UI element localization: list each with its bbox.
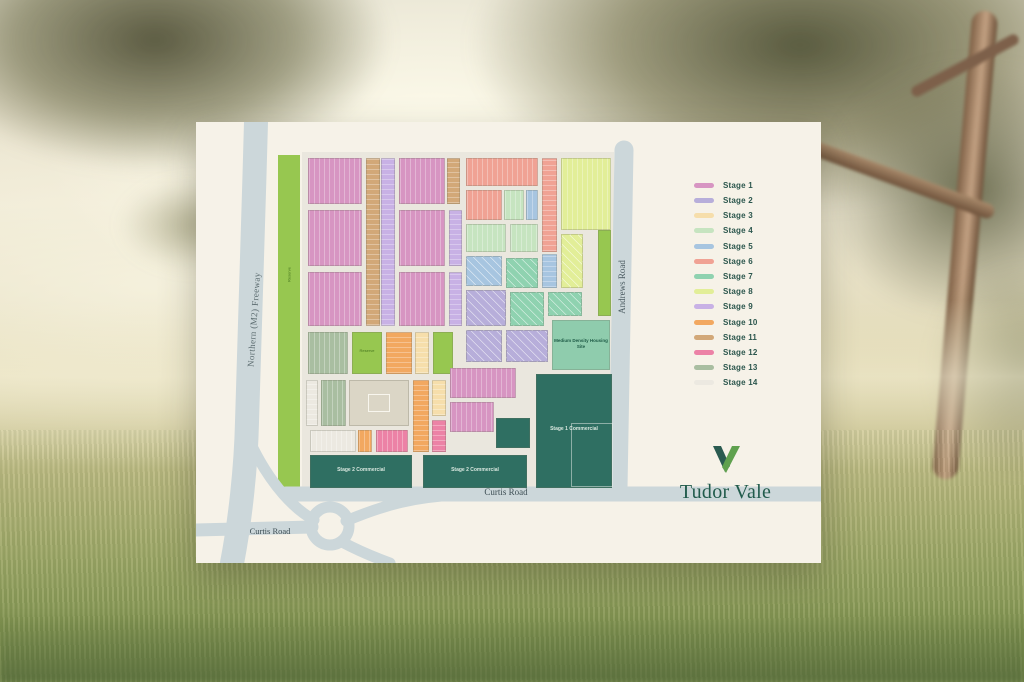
legend-swatch	[694, 335, 714, 340]
lot-block-s8	[561, 158, 611, 230]
lot-block-bldg	[349, 380, 409, 426]
legend-swatch	[694, 380, 714, 385]
legend-item-stage-12: Stage 12	[694, 347, 814, 358]
lot-block-comm: Stage 2 Commercial	[310, 455, 412, 488]
legend-item-stage-13: Stage 13	[694, 362, 814, 373]
stage2-commercial-a-label: Stage 2 Commercial	[311, 467, 411, 473]
lot-block-s1	[308, 158, 362, 204]
curtis-road-west-label: Curtis Road	[226, 526, 314, 536]
legend-item-stage-6: Stage 6	[694, 256, 814, 267]
legend-item-stage-1: Stage 1	[694, 180, 814, 191]
legend-swatch	[694, 244, 714, 249]
reserve-label-2: Reserve	[348, 348, 386, 353]
reserve-label: Reserve	[287, 248, 292, 302]
masterplan-card: Medium Density Housing SiteStage 1 Comme…	[196, 122, 821, 563]
lot-block-s14	[306, 380, 318, 426]
lot-block-s1	[308, 272, 362, 326]
lot-block-s4	[504, 190, 524, 220]
lot-block-s4	[510, 224, 538, 252]
tudor-vale-logo: Tudor Vale	[658, 446, 793, 504]
legend-item-stage-7: Stage 7	[694, 271, 814, 282]
lot-block-s7	[548, 292, 582, 316]
lot-block-s1	[308, 210, 362, 266]
lot-block-comm: Stage 2 Commercial	[423, 455, 527, 488]
lot-block-s6	[466, 158, 538, 186]
legend-swatch	[694, 198, 714, 203]
lot-block-s5	[526, 190, 538, 220]
scene: Medium Density Housing SiteStage 1 Comme…	[0, 0, 1024, 682]
legend-swatch	[694, 183, 714, 188]
lot-block-s4	[466, 224, 506, 252]
legend-label: Stage 7	[723, 272, 753, 281]
legend-label: Stage 11	[723, 333, 757, 342]
legend-label: Stage 8	[723, 287, 753, 296]
lot-block-s12	[376, 430, 408, 452]
legend-swatch	[694, 289, 714, 294]
lot-block-s9	[449, 210, 462, 266]
lot-block-comm	[496, 418, 530, 448]
lot-block-s5	[542, 254, 557, 288]
lot-block-s1	[399, 272, 445, 326]
legend-swatch	[694, 259, 714, 264]
legend-label: Stage 1	[723, 181, 753, 190]
commercial-sub-lot	[571, 423, 613, 487]
legend-item-stage-2: Stage 2	[694, 195, 814, 206]
lot-block-s9	[381, 158, 395, 326]
legend-swatch	[694, 365, 714, 370]
lot-block-s7	[510, 292, 544, 326]
legend-label: Stage 13	[723, 363, 758, 372]
legend-label: Stage 5	[723, 242, 753, 251]
lot-block-s11	[447, 158, 460, 204]
lot-block-s13	[321, 380, 346, 426]
lot-block-s1	[450, 368, 516, 398]
lot-block-s11	[366, 158, 380, 326]
lot-block-s7	[506, 258, 538, 288]
legend-swatch	[694, 228, 714, 233]
legend-swatch	[694, 350, 714, 355]
legend-label: Stage 3	[723, 211, 753, 220]
medium-density-label: Medium Density Housing Site	[553, 338, 609, 349]
legend-item-stage-5: Stage 5	[694, 241, 814, 252]
lot-block-s6	[542, 158, 557, 252]
legend-item-stage-10: Stage 10	[694, 317, 814, 328]
legend-item-stage-14: Stage 14	[694, 377, 814, 388]
lot-block-s2	[506, 330, 548, 362]
legend-label: Stage 4	[723, 226, 753, 235]
legend-swatch	[694, 213, 714, 218]
lot-block-s8	[561, 234, 583, 288]
stage1-commercial-label: Stage 1 Commercial	[537, 426, 611, 432]
lot-block-s10	[413, 380, 429, 452]
legend-swatch	[694, 274, 714, 279]
legend-item-stage-9: Stage 9	[694, 302, 814, 313]
lot-block-s1	[399, 158, 445, 204]
legend-item-stage-8: Stage 8	[694, 286, 814, 297]
andrews-road-label: Andrews Road	[617, 239, 627, 335]
legend-label: Stage 14	[723, 378, 758, 387]
lot-block-s9	[449, 272, 462, 326]
stage2-commercial-b-label: Stage 2 Commercial	[424, 467, 526, 473]
lot-block-comm: Stage 1 Commercial	[536, 374, 612, 488]
curtis-road-label: Curtis Road	[456, 487, 556, 497]
legend-label: Stage 6	[723, 257, 753, 266]
tudor-vale-chevron-icon	[711, 446, 741, 473]
legend-label: Stage 10	[723, 318, 758, 327]
lot-block-s2	[466, 290, 506, 326]
grass-foreground	[0, 612, 1024, 682]
lot-block-s1	[450, 402, 494, 432]
lot-block-md: Medium Density Housing Site	[552, 320, 610, 370]
lot-block-s5	[466, 256, 502, 286]
legend-item-stage-3: Stage 3	[694, 210, 814, 221]
stage-legend: Stage 1Stage 2Stage 3Stage 4Stage 5Stage…	[694, 180, 814, 388]
lot-block-s10	[358, 430, 372, 452]
lot-block-s3	[415, 332, 429, 374]
legend-item-stage-11: Stage 11	[694, 332, 814, 343]
lot-block-s2	[466, 330, 502, 362]
legend-swatch	[694, 320, 714, 325]
legend-item-stage-4: Stage 4	[694, 226, 814, 237]
lot-block-s12	[432, 420, 446, 452]
lot-block-s3	[432, 380, 446, 416]
legend-label: Stage 12	[723, 348, 758, 357]
lot-block-park	[352, 332, 382, 374]
lot-block-s13	[308, 332, 348, 374]
lot-block-s10	[386, 332, 412, 374]
lot-block-s1	[399, 210, 445, 266]
lot-block-s14	[310, 430, 356, 452]
tudor-vale-wordmark: Tudor Vale	[658, 481, 793, 504]
legend-label: Stage 9	[723, 302, 753, 311]
lot-block-park	[598, 230, 611, 316]
building-footprint	[368, 394, 390, 412]
lot-block-s6	[466, 190, 502, 220]
legend-label: Stage 2	[723, 196, 753, 205]
legend-swatch	[694, 304, 714, 309]
